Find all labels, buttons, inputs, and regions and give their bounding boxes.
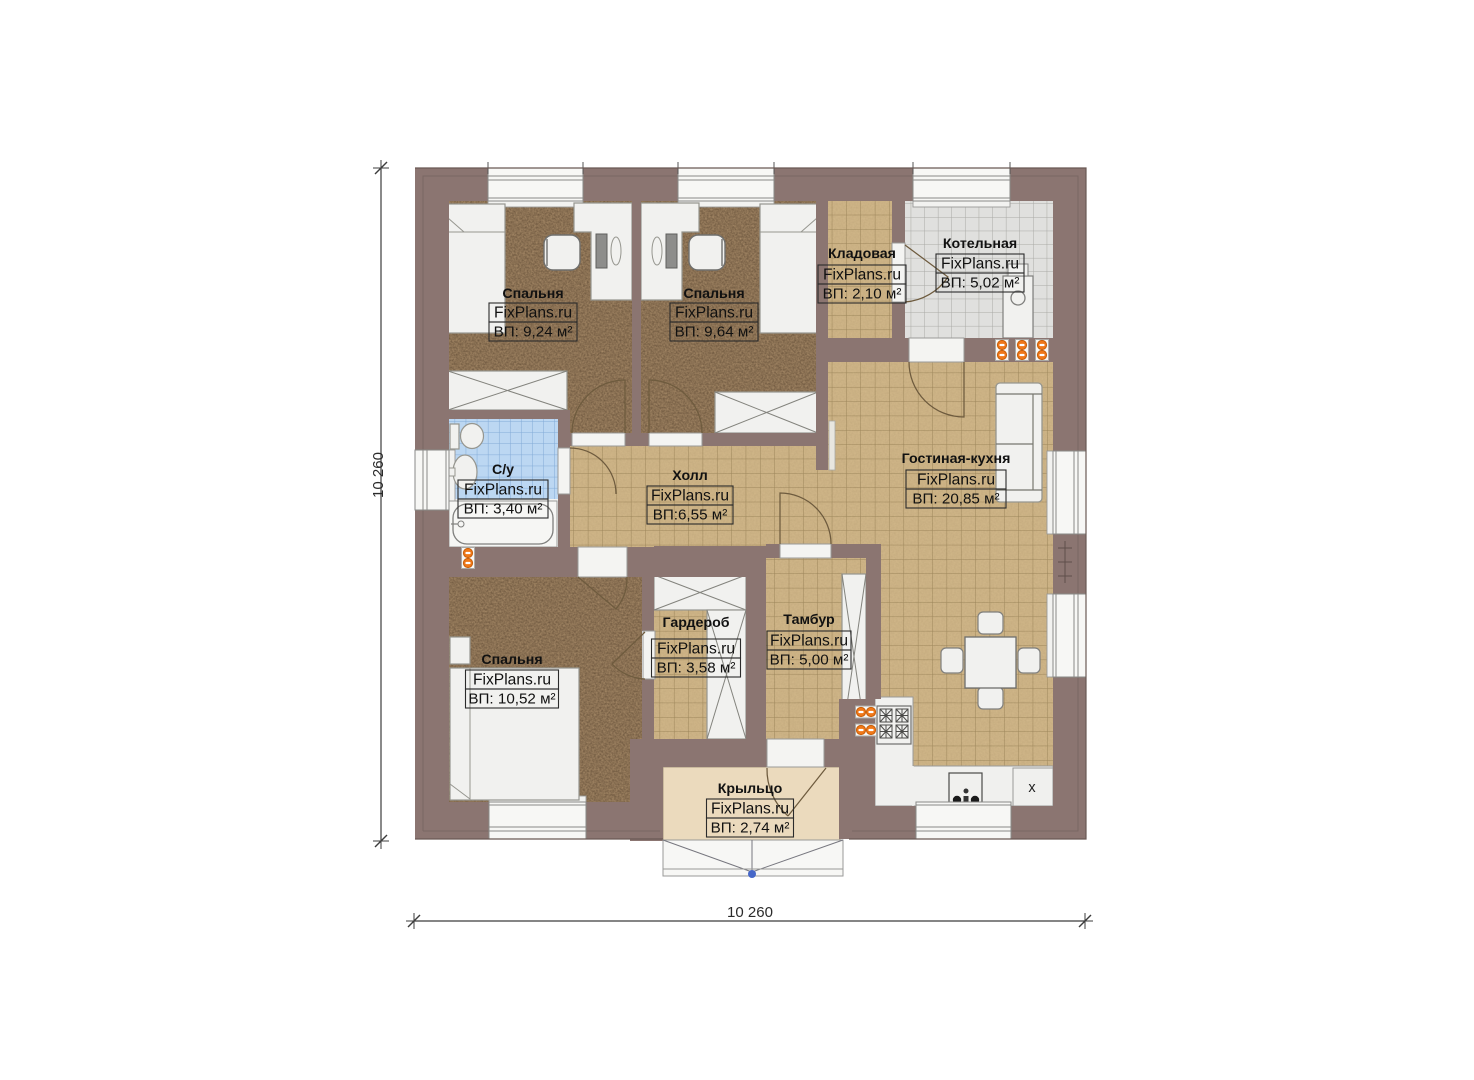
svg-text:ВП: 3,58 м²: ВП: 3,58 м² [657, 660, 736, 677]
svg-text:FixPlans.ru: FixPlans.ru [770, 633, 848, 650]
svg-text:ВП: 10,52 м²: ВП: 10,52 м² [468, 691, 555, 708]
svg-text:FixPlans.ru: FixPlans.ru [464, 482, 542, 499]
svg-text:ВП: 3,40 м²: ВП: 3,40 м² [464, 501, 543, 518]
svg-text:Спальня: Спальня [502, 286, 563, 302]
svg-text:ВП: 9,64 м²: ВП: 9,64 м² [675, 324, 754, 341]
svg-text:ВП: 2,74 м²: ВП: 2,74 м² [711, 820, 790, 837]
svg-text:Котельная: Котельная [943, 236, 1017, 252]
svg-text:FixPlans.ru: FixPlans.ru [651, 488, 729, 505]
svg-text:10 260: 10 260 [727, 904, 773, 921]
svg-text:ВП: 20,85 м²: ВП: 20,85 м² [912, 491, 999, 508]
svg-text:x: x [1028, 780, 1036, 796]
svg-text:FixPlans.ru: FixPlans.ru [917, 472, 995, 489]
svg-text:С/у: С/у [492, 462, 514, 478]
svg-text:ВП: 5,02 м²: ВП: 5,02 м² [941, 275, 1020, 292]
svg-text:ВП: 9,24 м²: ВП: 9,24 м² [494, 324, 573, 341]
svg-text:Крыльцо: Крыльцо [718, 781, 783, 797]
svg-text:Спальня: Спальня [481, 652, 542, 668]
svg-text:FixPlans.ru: FixPlans.ru [473, 672, 551, 689]
svg-text:Тамбур: Тамбур [783, 612, 835, 628]
svg-text:Гостиная-кухня: Гостиная-кухня [902, 451, 1011, 467]
svg-text:Гардероб: Гардероб [662, 615, 729, 631]
svg-text:Холл: Холл [672, 468, 708, 484]
svg-text:FixPlans.ru: FixPlans.ru [657, 641, 735, 658]
svg-text:ВП: 2,10 м²: ВП: 2,10 м² [823, 286, 902, 303]
svg-text:ВП:6,55 м²: ВП:6,55 м² [653, 507, 728, 524]
svg-text:FixPlans.ru: FixPlans.ru [941, 256, 1019, 273]
svg-text:FixPlans.ru: FixPlans.ru [711, 801, 789, 818]
svg-text:Кладовая: Кладовая [828, 246, 896, 262]
svg-text:Спальня: Спальня [683, 286, 744, 302]
svg-text:FixPlans.ru: FixPlans.ru [494, 305, 572, 322]
svg-text:FixPlans.ru: FixPlans.ru [823, 267, 901, 284]
svg-text:10 260: 10 260 [370, 452, 387, 498]
svg-text:FixPlans.ru: FixPlans.ru [675, 305, 753, 322]
svg-text:ВП: 5,00 м²: ВП: 5,00 м² [770, 652, 849, 669]
